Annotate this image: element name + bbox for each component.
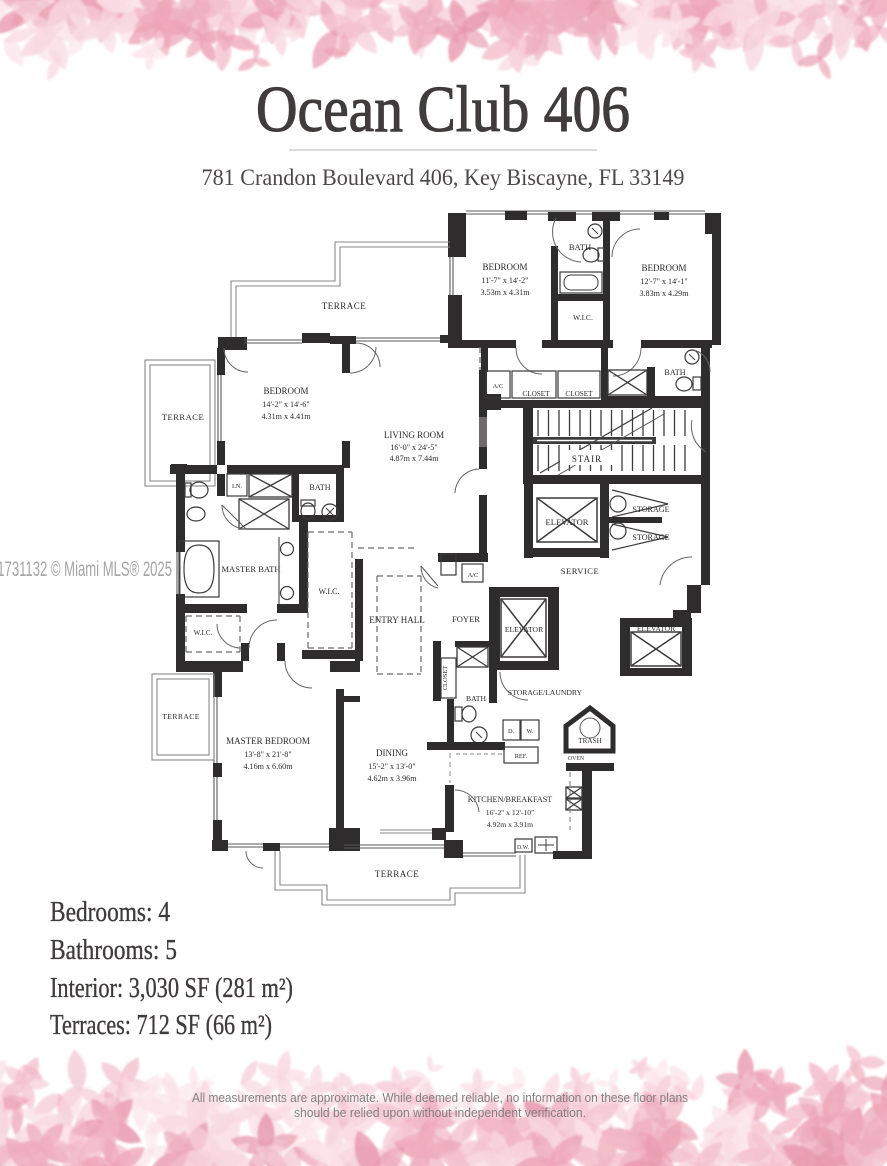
svg-text:W.: W. — [527, 728, 534, 735]
svg-text:11'-7" x 14'-2": 11'-7" x 14'-2" — [482, 276, 529, 285]
svg-text:ELEVATOR: ELEVATOR — [505, 625, 544, 634]
svg-text:Bedrooms: 4: Bedrooms: 4 — [50, 897, 170, 928]
svg-text:16'-2" x 12'-10": 16'-2" x 12'-10" — [486, 808, 534, 817]
svg-text:BEDROOM: BEDROOM — [641, 263, 686, 273]
svg-text:4.31m x 4.41m: 4.31m x 4.41m — [261, 412, 311, 421]
svg-text:BATH: BATH — [466, 694, 486, 703]
svg-text:LIVING ROOM: LIVING ROOM — [384, 430, 444, 440]
svg-text:3.83m x 4.29m: 3.83m x 4.29m — [639, 289, 689, 298]
svg-text:BATH: BATH — [569, 242, 591, 252]
svg-text:CLOSET: CLOSET — [522, 390, 550, 398]
svg-text:LN.: LN. — [232, 483, 242, 490]
svg-text:16'-0" x 24'-5": 16'-0" x 24'-5" — [390, 443, 437, 452]
svg-text:STORAGE: STORAGE — [632, 533, 669, 542]
svg-text:STAIR: STAIR — [572, 454, 602, 464]
svg-text:W.I.C.: W.I.C. — [194, 629, 213, 637]
svg-text:BATH: BATH — [309, 483, 330, 492]
svg-text:REF.: REF. — [515, 753, 528, 760]
svg-text:TRASH: TRASH — [578, 737, 602, 745]
svg-text:KITCHEN/BREAKFAST: KITCHEN/BREAKFAST — [468, 795, 552, 804]
svg-text:ELEVATOR: ELEVATOR — [637, 624, 676, 633]
svg-text:CLOSET: CLOSET — [565, 390, 593, 398]
svg-text:SERVICE: SERVICE — [561, 566, 599, 576]
svg-text:4.62m x 3.96m: 4.62m x 3.96m — [367, 774, 417, 783]
svg-text:MASTER BATH: MASTER BATH — [221, 564, 280, 574]
svg-text:Terraces: 712 SF (66 m²): Terraces: 712 SF (66 m²) — [50, 1010, 272, 1041]
svg-text:ELEVATOR: ELEVATOR — [546, 517, 589, 527]
svg-text:MASTER BEDROOM: MASTER BEDROOM — [226, 736, 310, 746]
svg-text:TERRACE: TERRACE — [162, 412, 204, 422]
svg-text:W.I.C.: W.I.C. — [318, 587, 339, 596]
svg-text:W.I.C.: W.I.C. — [573, 313, 593, 322]
svg-text:ENTRY HALL: ENTRY HALL — [369, 615, 424, 625]
svg-text:TERRACE: TERRACE — [322, 301, 367, 311]
svg-text:41731132 © Miami MLS® 2025: 41731132 © Miami MLS® 2025 — [0, 558, 172, 581]
svg-text:CLOSET: CLOSET — [442, 666, 449, 691]
svg-text:FOYER: FOYER — [452, 614, 480, 624]
svg-text:STORAGE/LAUNDRY: STORAGE/LAUNDRY — [508, 688, 583, 697]
svg-text:3.53m x 4.31m: 3.53m x 4.31m — [480, 288, 530, 297]
svg-text:A/C: A/C — [468, 572, 479, 579]
svg-text:4.16m x 6.60m: 4.16m x 6.60m — [243, 762, 293, 771]
svg-text:Bathrooms: 5: Bathrooms: 5 — [50, 935, 177, 966]
svg-text:TERRACE: TERRACE — [375, 869, 420, 879]
svg-text:4.87m x 7.44m: 4.87m x 7.44m — [389, 454, 439, 463]
svg-text:12'-7" x 14'-1": 12'-7" x 14'-1" — [640, 277, 687, 286]
svg-text:DINING: DINING — [376, 748, 408, 758]
svg-text:D.W.: D.W. — [517, 845, 530, 851]
svg-text:BEDROOM: BEDROOM — [482, 262, 527, 272]
svg-text:4.92m x 3.91m: 4.92m x 3.91m — [487, 820, 533, 829]
svg-text:Interior: 3,030 SF (281 m²): Interior: 3,030 SF (281 m²) — [50, 973, 293, 1004]
svg-text:STORAGE: STORAGE — [632, 505, 669, 514]
svg-text:15'-2" x 13'-0": 15'-2" x 13'-0" — [368, 762, 415, 771]
svg-text:D.: D. — [508, 728, 515, 735]
svg-text:13'-8" x 21'-8": 13'-8" x 21'-8" — [244, 750, 291, 759]
svg-text:14'-2" x 14'-6": 14'-2" x 14'-6" — [262, 400, 309, 409]
svg-text:BEDROOM: BEDROOM — [263, 386, 308, 396]
svg-text:A/C: A/C — [493, 383, 504, 390]
svg-text:should be relied upon without: should be relied upon without independen… — [294, 1106, 586, 1120]
svg-text:Ocean Club 406: Ocean Club 406 — [256, 73, 630, 146]
svg-text:BATH: BATH — [664, 368, 685, 377]
svg-text:OVEN: OVEN — [568, 756, 585, 762]
svg-text:781 Crandon Boulevard 406, Key: 781 Crandon Boulevard 406, Key Biscayne,… — [202, 165, 685, 190]
svg-text:All measurements are approxima: All measurements are approximate. While … — [192, 1091, 688, 1105]
svg-text:TERRACE: TERRACE — [162, 712, 200, 721]
